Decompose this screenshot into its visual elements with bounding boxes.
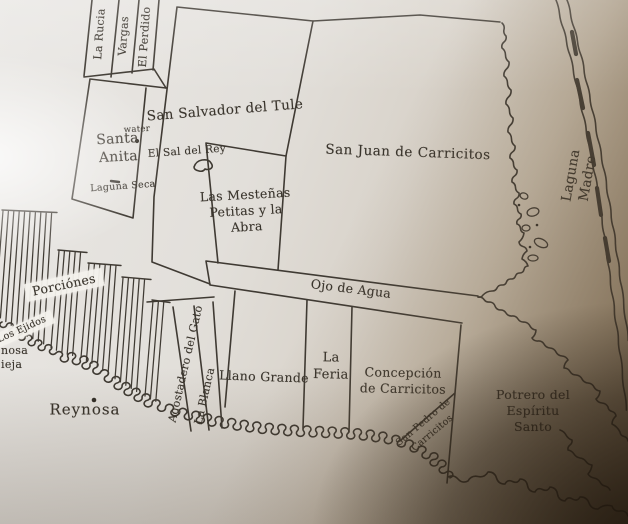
reynosa-town-dot [92,398,97,403]
san-juan-top-edge [313,15,500,22]
rio-grande-curls [60,353,452,478]
map-photo: La Rucia Vargas El Perdido San Salvador … [0,0,628,524]
marsh-dot [536,224,539,227]
marsh-blob [522,225,530,231]
porciones-step-line [58,250,87,253]
south-tract-boundaries [147,291,461,483]
resaca-squiggle [560,430,610,490]
strip-tracts-outline [84,0,166,88]
marsh-dot [518,204,521,207]
marsh-blob [526,207,540,218]
coastline-north [478,23,528,297]
san-salvador-outline [152,7,313,284]
coastline-south [478,297,628,441]
marsh-blob [519,192,529,200]
marsh-blob [528,255,538,261]
barrier-island-blobs [572,32,609,261]
porciones-step-line [122,277,151,280]
las-mestenas-outline [206,143,286,270]
laguna-seca-pond [111,181,119,182]
marsh-dot [529,246,532,249]
santa-anita-outline [72,79,166,218]
santa-anita-water-dot [135,139,139,143]
barrier-island-outer [556,0,626,410]
ojo-de-agua-strip [206,261,478,323]
map-linework [0,0,628,524]
rio-grande-mouth [448,472,628,516]
marsh-blob [533,236,549,249]
el-sal-del-rey-lake [194,160,212,171]
